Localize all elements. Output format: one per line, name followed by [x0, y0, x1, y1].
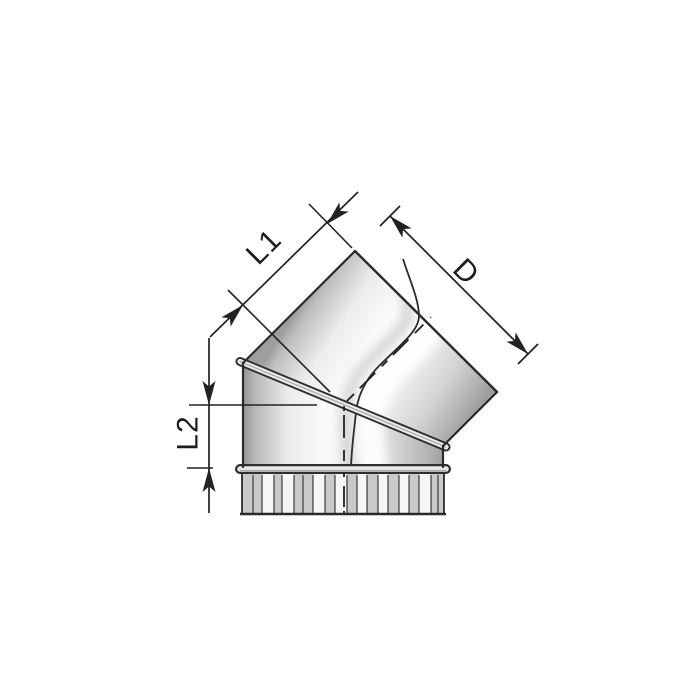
l1-label: L1: [240, 223, 288, 271]
crimp-band: [240, 473, 446, 514]
page: L1 L2 D: [0, 0, 700, 700]
elbow-drawing: L1 L2 D: [0, 0, 700, 700]
l2-label: L2: [172, 415, 205, 450]
l1-extension-line-upper: [309, 204, 352, 248]
l1-arrowhead-upper: [322, 202, 348, 228]
d-label: D: [446, 252, 485, 291]
end-bead-ring: [240, 469, 446, 471]
